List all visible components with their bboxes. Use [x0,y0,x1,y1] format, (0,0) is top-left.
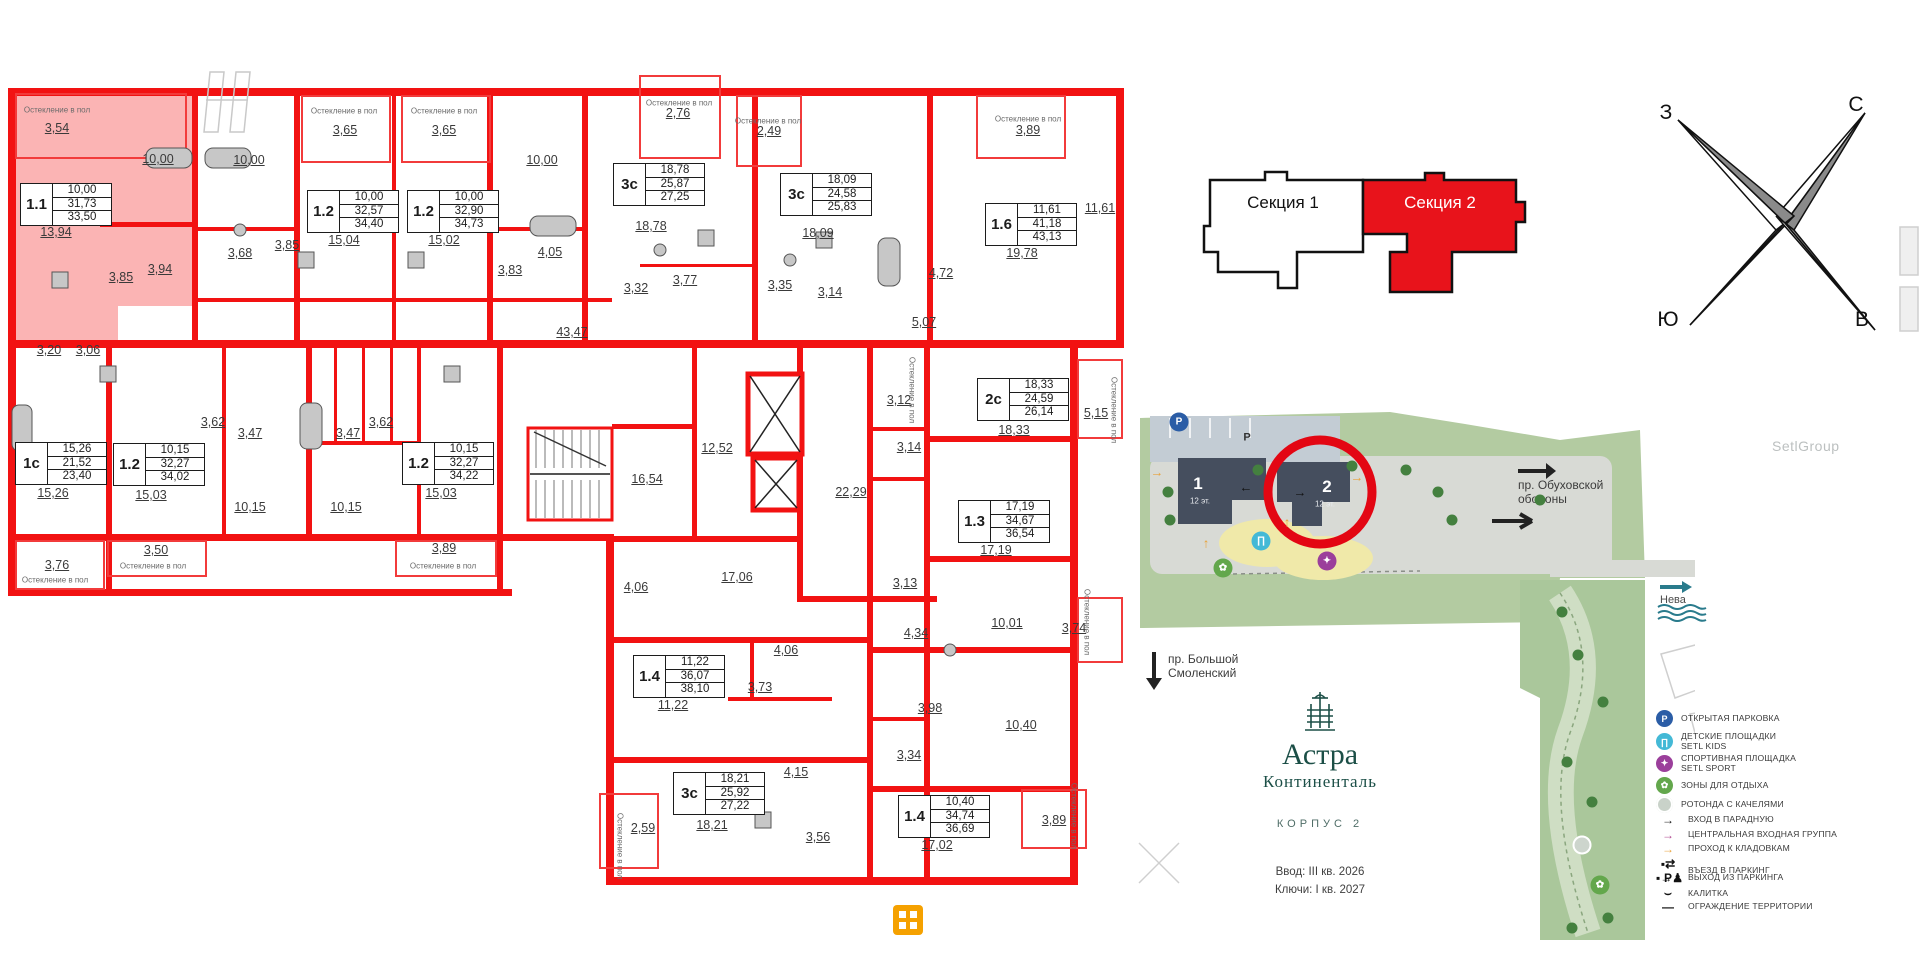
apartment-type: 1.2 [114,444,146,485]
glazing-note: Остекление в пол [120,562,186,571]
legend-item: ▪→♟ВЫХОД ИЗ ПАРКИНГА [1656,871,1783,885]
legend-item: ✦СПОРТИВНАЯ ПЛОЩАДКАSETL SPORT [1656,754,1796,774]
apartment-area-value: 31,73 [53,198,111,212]
map-tree-icon [1253,465,1264,476]
room-area-label: 15,03 [425,486,456,500]
legend-label-line: ПРОХОД К КЛАДОВКАМ [1688,844,1790,854]
room-area-label: 11,61 [1085,201,1115,215]
legend-label-line: ЦЕНТРАЛЬНАЯ ВХОДНАЯ ГРУППА [1688,830,1837,840]
room-area-label: 3,54 [45,121,69,135]
legend-item: →ВХОД В ПАРАДНУЮ [1656,813,1774,827]
room-area-label: 3,68 [228,246,252,260]
apartment-area-value: 24,58 [813,188,871,202]
apartment-area-value: 24,59 [1010,393,1068,407]
apartment-area-value: 11,61 [1018,204,1076,218]
room-area-label: 10,01 [991,616,1022,630]
room-area-label: 4,15 [784,765,808,779]
room-area-label: 3,85 [275,238,299,252]
apartment-areas: 18,7825,8727,25 [646,164,704,205]
legend-item: —ОГРАЖДЕНИЕ ТЕРРИТОРИИ [1656,900,1813,914]
room-area-label: 3,20 [37,343,61,357]
legend-label-line: РОТОНДА С КАЧЕЛЯМИ [1681,800,1784,810]
room-area-label: 3,65 [333,123,357,137]
parking-entry-mark: Р [1243,433,1250,444]
map-tree-icon [1165,515,1176,526]
compass-west: З [1660,101,1673,125]
apartment-areas: 10,0031,7333,50 [53,184,111,225]
room-area-label: 2,76 [666,106,690,120]
room-area-label: 3,13 [893,576,917,590]
room-area-label: 10,00 [233,153,264,167]
legend-item: PОТКРЫТАЯ ПАРКОВКА [1656,710,1780,727]
compass-south: Ю [1657,308,1678,332]
commissioning-date: Ввод: III кв. 2026 [1240,864,1400,882]
apartment-type: 1.2 [308,191,340,232]
keys-date: Ключи: I кв. 2027 [1240,882,1400,900]
apartment-area-value: 10,00 [340,191,398,205]
apartment-card-3с[interactable]: 3с18,2125,9227,22 [673,772,765,815]
apartment-areas: 10,1532,2734,22 [435,443,493,484]
project-emblem-icon [1299,690,1341,734]
neva-arrow-icon [1658,580,1692,594]
glazing-note: Остекление в пол [410,562,476,571]
room-area-label: 3,98 [918,701,942,715]
map-tree-icon [1598,697,1609,708]
map-direction-icon: ← [1240,481,1253,494]
legend-label: ЗОНЫ ДЛЯ ОТДЫХА [1681,781,1769,791]
legend-icon: → [1656,842,1680,856]
legend-item: ⌣КАЛИТКА [1656,886,1728,901]
room-area-label: 18,78 [635,219,666,233]
apartment-area-value: 34,40 [340,218,398,232]
apartment-area-value: 10,40 [931,796,989,810]
apartment-type: 1.4 [634,656,666,697]
building-name: КОРПУС 2 [1240,818,1400,830]
room-area-label: 15,04 [328,233,359,247]
room-area-label: 18,21 [696,818,727,832]
apartment-area-value: 10,15 [435,443,493,457]
room-area-label: 11,22 [658,698,688,712]
apartment-area-value: 10,00 [440,191,498,205]
legend-icon: ✿ [1656,777,1673,794]
apartment-area-value: 26,14 [1010,406,1068,420]
staircase [528,428,612,520]
legend-item: →ПРОХОД К КЛАДОВКАМ [1656,842,1790,856]
legend-icon: → [1656,828,1680,842]
apartment-area-value: 18,78 [646,164,704,178]
legend-icon: ⌣ [1656,886,1680,901]
apartment-area-value: 32,27 [435,457,493,471]
road-smolensky-label: пр. Большой Смоленский [1168,652,1238,680]
room-area-label: 3,50 [144,543,168,557]
section-2-label[interactable]: Секция 2 [1404,193,1476,213]
legend-icon: ▪→♟ [1656,871,1680,885]
map-direction-icon: ↑ [1203,537,1210,550]
apartment-area-value: 34,73 [440,218,498,232]
glazing-note: Остекление в пол [646,99,712,108]
legend-label-line: ОГРАЖДЕНИЕ ТЕРРИТОРИИ [1688,902,1813,912]
developer-watermark: SetlGroup [1772,438,1840,454]
room-area-label: 15,26 [37,486,68,500]
apartment-area-value: 36,69 [931,823,989,837]
apartment-area-value: 11,22 [666,656,724,670]
building-1-number[interactable]: 1 [1193,474,1202,494]
apartment-areas: 18,0924,5825,83 [813,174,871,215]
legend-item: РОТОНДА С КАЧЕЛЯМИ [1656,796,1784,813]
section-2-shape[interactable] [1363,173,1525,292]
apartment-area-value: 10,00 [53,184,111,198]
legend-icon: — [1656,900,1680,914]
legend-label-line: ОТКРЫТАЯ ПАРКОВКА [1681,714,1780,724]
apartment-area-value: 32,27 [146,458,204,472]
apartment-areas: 11,6141,1843,13 [1018,204,1076,245]
room-area-label: 18,09 [802,226,833,240]
legend-label: СПОРТИВНАЯ ПЛОЩАДКАSETL SPORT [1681,754,1796,774]
room-area-label: 3,77 [673,273,697,287]
map-poi-icon[interactable]: ∏ [1252,532,1271,551]
room-area-label: 13,94 [40,225,71,239]
apartment-area-value: 10,15 [146,444,204,458]
apartment-area-value: 36,54 [991,528,1049,542]
apartment-card-3с[interactable]: 3с18,7825,8727,25 [613,163,705,206]
glazing-note: Остекление в пол [995,115,1061,124]
legend-icon [1656,796,1673,813]
project-name-2: Континенталь [1240,772,1400,792]
apartment-areas: 10,0032,9034,73 [440,191,498,232]
apartment-area-value: 21,52 [48,457,106,471]
apartment-area-value: 32,90 [440,205,498,219]
map-direction-icon: ↑ [1284,516,1291,529]
site-map [1135,408,1695,953]
room-area-label: 3,35 [768,278,792,292]
room-area-label: 3,06 [76,343,100,357]
apartment-area-value: 25,83 [813,201,871,215]
map-poi-icon[interactable]: ✦ [1318,552,1337,571]
room-area-label: 3,89 [432,541,456,555]
map-tree-icon [1603,913,1614,924]
legend-label: ОТКРЫТАЯ ПАРКОВКА [1681,714,1780,724]
apartment-type: 1.4 [899,796,931,837]
room-area-label: 17,06 [721,570,752,584]
glazing-note: Остекление в пол [24,106,90,115]
apartment-card-1.4[interactable]: 1.410,4034,7436,69 [898,795,990,838]
room-area-label: 12,52 [701,441,732,455]
map-tree-icon [1587,797,1598,808]
glazing-note: Остекление в пол [1070,783,1079,849]
smolensky-arrow-icon [1144,650,1164,690]
apartment-area-value: 38,10 [666,683,724,697]
glazing-note: Остекление в пол [1083,589,1092,655]
setl-logo-icon [893,905,923,935]
map-direction-icon: → [1351,471,1364,484]
apartment-type: 1.3 [959,501,991,542]
room-area-label: 3,73 [748,680,772,694]
room-area-label: 4,34 [904,626,928,640]
apartment-area-value: 27,22 [706,800,764,814]
apartment-type: 1с [16,443,48,484]
room-area-label: 3,76 [45,558,69,572]
legend-label: ВЫХОД ИЗ ПАРКИНГА [1688,873,1783,883]
map-tree-icon [1567,923,1578,934]
room-area-label: 16,54 [631,472,662,486]
apartment-card-1.2[interactable]: 1.210,1532,2734,22 [402,442,494,485]
apartment-type: 3с [674,773,706,814]
room-area-label: 17,19 [980,543,1011,557]
room-area-label: 3,62 [201,415,225,429]
apartment-area-value: 27,25 [646,191,704,205]
map-tree-icon [1433,487,1444,498]
apartment-card-1.2[interactable]: 1.210,1532,2734,02 [113,443,205,486]
room-area-label: 10,15 [234,500,265,514]
apartment-area-value: 34,22 [435,470,493,484]
apartment-area-value: 43,13 [1018,231,1076,245]
legend-label-line: ВЫХОД ИЗ ПАРКИНГА [1688,873,1783,883]
apartment-area-value: 34,74 [931,810,989,824]
legend-item: ✿ЗОНЫ ДЛЯ ОТДЫХА [1656,777,1769,794]
apartment-areas: 11,2236,0738,10 [666,656,724,697]
apartment-type: 3с [614,164,646,205]
map-tree-icon [1535,495,1546,506]
glazing-note: Остекление в пол [908,357,917,423]
room-area-label: 43,47 [556,325,587,339]
room-area-label: 4,72 [929,266,953,280]
apartment-type: 1.2 [403,443,435,484]
legend-label-line: КАЛИТКА [1688,889,1728,899]
legend-label: ОГРАЖДЕНИЕ ТЕРРИТОРИИ [1688,902,1813,912]
building-2-floors: 12 эт. [1315,500,1335,509]
apartment-card-1.1[interactable]: 1.110,0031,7333,50 [20,183,112,226]
map-direction-icon: → [1294,486,1307,499]
room-area-label: 3,14 [818,285,842,299]
room-area-label: 5,07 [912,315,936,329]
section-1-label[interactable]: Секция 1 [1247,193,1319,213]
elevator-shafts [748,374,802,510]
apartment-type: 2с [978,379,1010,420]
legend-icon: → [1656,813,1680,827]
apartment-area-value: 18,21 [706,773,764,787]
apartment-areas: 15,2621,5223,40 [48,443,106,484]
apartment-area-value: 33,50 [53,211,111,225]
legend-label-line: ЗОНЫ ДЛЯ ОТДЫХА [1681,781,1769,791]
legend-item: →ЦЕНТРАЛЬНАЯ ВХОДНАЯ ГРУППА [1656,828,1837,842]
room-area-label: 3,47 [238,426,262,440]
legend-label-line: SETL KIDS [1681,742,1776,752]
glazing-note: Остекление в пол [311,107,377,116]
map-tree-icon [1573,650,1584,661]
room-area-label: 22,29 [835,485,866,499]
glazing-note: Остекление в пол [22,576,88,585]
apartment-area-value: 23,40 [48,470,106,484]
room-area-label: 3,94 [148,262,172,276]
apartment-areas: 10,4034,7436,69 [931,796,989,837]
room-area-label: 3,14 [897,440,921,454]
building-2-number[interactable]: 2 [1322,477,1331,497]
room-area-label: 5,15 [1084,406,1108,420]
legend-label: ПРОХОД К КЛАДОВКАМ [1688,844,1790,854]
floorplan-area: 3,5410,0010,0013,943,853,943,683,853,651… [0,0,1130,960]
map-poi-icon[interactable]: P [1170,413,1189,432]
apartment-areas: 10,1532,2734,02 [146,444,204,485]
room-area-label: 10,15 [330,500,361,514]
room-area-label: 3,32 [624,281,648,295]
apartment-type: 1.2 [408,191,440,232]
compass-north: С [1848,93,1863,117]
map-tree-icon [1163,487,1174,498]
room-area-label: 3,85 [109,270,133,284]
project-branding: Астра Континенталь КОРПУС 2 Ввод: III кв… [1240,690,1400,900]
room-area-label: 18,33 [998,423,1029,437]
apartment-area-value: 34,67 [991,515,1049,529]
glazing-note: Остекление в пол [1110,377,1119,443]
room-area-label: 15,03 [135,488,166,502]
map-tree-icon [1562,757,1573,768]
apartment-areas: 18,2125,9227,22 [706,773,764,814]
legend-icon: ∏ [1656,733,1673,750]
apartment-area-value: 18,33 [1010,379,1068,393]
map-direction-icon: → [1151,466,1164,479]
apartment-card-1.4[interactable]: 1.411,2236,0738,10 [633,655,725,698]
room-area-label: 10,00 [526,153,557,167]
glazing-note: Остекление в пол [735,117,801,126]
legend-label: ДЕТСКИЕ ПЛОЩАДКИSETL KIDS [1681,732,1776,752]
apartment-card-1с[interactable]: 1с15,2621,5223,40 [15,442,107,485]
floorplan-page: 3,5410,0010,0013,943,853,943,683,853,651… [0,0,1920,960]
room-area-label: 2,59 [631,821,655,835]
road-obukhov-label: пр. Обуховской обороны [1518,478,1603,506]
section-selector [1200,160,1530,295]
room-area-label: 15,02 [428,233,459,247]
legend-label-line: SETL SPORT [1681,764,1796,774]
apartment-area-value: 18,09 [813,174,871,188]
legend-label: ЦЕНТРАЛЬНАЯ ВХОДНАЯ ГРУППА [1688,830,1837,840]
apartment-area-value: 15,26 [48,443,106,457]
room-area-label: 10,40 [1005,718,1036,732]
apartment-area-value: 17,19 [991,501,1049,515]
room-area-label: 3,62 [369,415,393,429]
river-waves-icon [1656,604,1708,622]
glazing-note: Остекление в пол [616,813,625,879]
building-1-floors: 12 эт. [1190,497,1210,506]
map-tree-icon [1347,461,1358,472]
legend-label: РОТОНДА С КАЧЕЛЯМИ [1681,800,1784,810]
apartment-type: 1.6 [986,204,1018,245]
room-area-label: 3,34 [897,748,921,762]
apartment-area-value: 25,87 [646,178,704,192]
legend-label: КАЛИТКА [1688,889,1728,899]
apartment-card-1.2[interactable]: 1.210,0032,9034,73 [407,190,499,233]
project-name: Астра [1240,738,1400,772]
apartment-type: 1.1 [21,184,53,225]
edge-fragment [1898,225,1920,345]
room-area-label: 3,56 [806,830,830,844]
apartment-card-1.6[interactable]: 1.611,6141,1843,13 [985,203,1077,246]
apartment-card-3с[interactable]: 3с18,0924,5825,83 [780,173,872,216]
apartment-card-1.2[interactable]: 1.210,0032,5734,40 [307,190,399,233]
room-area-label: 3,89 [1016,123,1040,137]
room-area-label: 3,47 [336,426,360,440]
map-poi-icon[interactable]: ✿ [1591,876,1610,895]
room-area-label: 17,02 [921,838,952,852]
room-area-label: 19,78 [1006,246,1037,260]
map-poi-icon[interactable] [1573,836,1592,855]
room-area-label: 3,83 [498,263,522,277]
apartment-area-value: 34,02 [146,471,204,485]
section-1-shape[interactable] [1204,172,1363,288]
room-area-label: 10,00 [142,152,173,166]
apartment-card-2с[interactable]: 2с18,3324,5926,14 [977,378,1069,421]
apartment-areas: 17,1934,6736,54 [991,501,1049,542]
apartment-type: 3с [781,174,813,215]
apartment-card-1.3[interactable]: 1.317,1934,6736,54 [958,500,1050,543]
map-poi-icon[interactable]: ✿ [1214,559,1233,578]
map-tree-icon [1401,465,1412,476]
room-area-label: 4,06 [774,643,798,657]
apartment-areas: 18,3324,5926,14 [1010,379,1068,420]
apartment-areas: 10,0032,5734,40 [340,191,398,232]
apartment-area-value: 36,07 [666,670,724,684]
map-tree-icon [1557,607,1568,618]
legend-icon: ✦ [1656,755,1673,772]
legend-label: ВХОД В ПАРАДНУЮ [1688,815,1774,825]
exterior-sketch [204,72,250,132]
glazing-note: Остекление в пол [411,107,477,116]
room-area-label: 4,05 [538,245,562,259]
room-area-label: 3,89 [1042,813,1066,827]
apartment-area-value: 41,18 [1018,218,1076,232]
room-area-label: 3,65 [432,123,456,137]
apartment-area-value: 32,57 [340,205,398,219]
legend-icon: P [1656,710,1673,727]
compass-east: В [1855,308,1869,332]
apartment-area-value: 25,92 [706,787,764,801]
legend-label-line: ВХОД В ПАРАДНУЮ [1688,815,1774,825]
room-area-label: 4,06 [624,580,648,594]
room-area-label: 2,49 [757,124,781,138]
legend-item: ∏ДЕТСКИЕ ПЛОЩАДКИSETL KIDS [1656,732,1776,752]
map-tree-icon [1447,515,1458,526]
